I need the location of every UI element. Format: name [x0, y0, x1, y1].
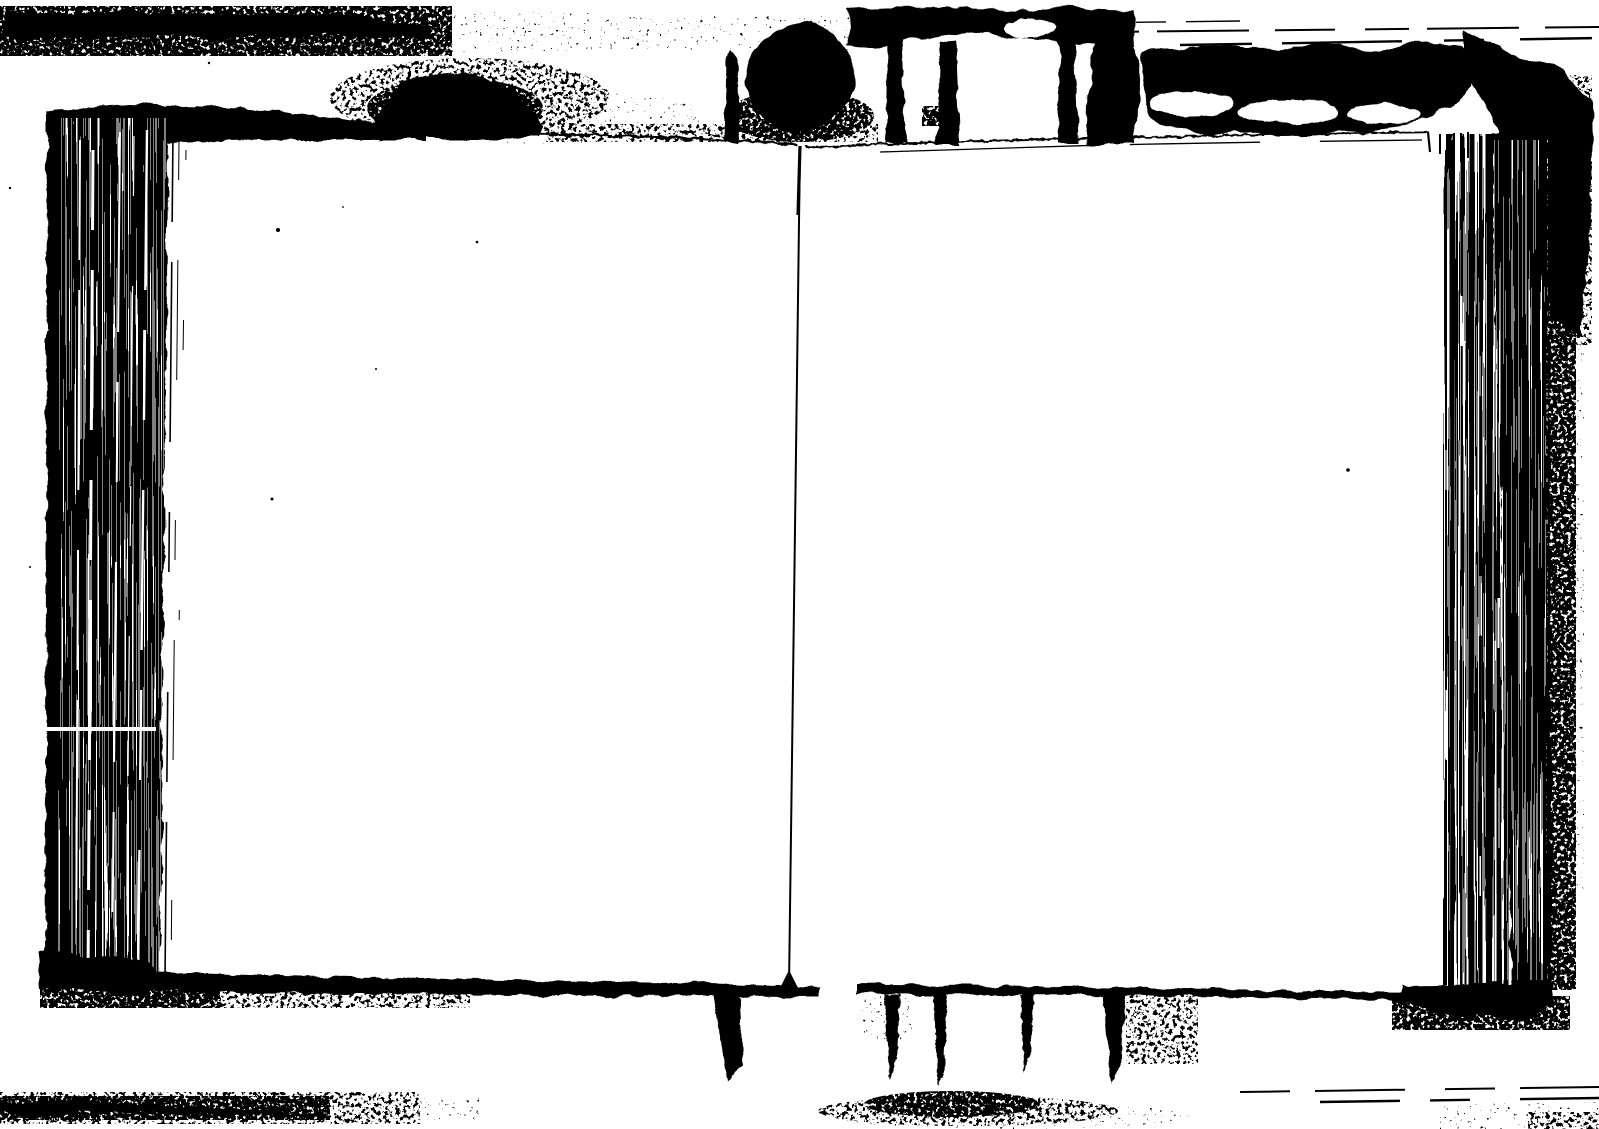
dust-speck — [29, 566, 31, 568]
page-edge-striation-line — [1461, 136, 1462, 990]
book-spine-gutter-top — [798, 146, 800, 215]
page-edge-striation-line — [1471, 134, 1472, 992]
book-spread — [36, 104, 1584, 1086]
dust-speck — [271, 498, 274, 501]
page-edge-striation-line — [1489, 134, 1490, 992]
dust-speck — [9, 187, 11, 189]
dust-speck — [276, 228, 280, 232]
post-fuzz — [1126, 994, 1198, 1064]
dust-speck — [342, 206, 344, 208]
dust-speck — [208, 62, 210, 64]
dirt-clump — [922, 106, 954, 126]
page-edge-striation-line — [1452, 140, 1453, 988]
post-fuzz — [862, 996, 912, 1042]
toner-mass-hole — [1348, 104, 1420, 124]
left-page-edge-texture — [58, 118, 166, 986]
bottom-toner-speckle — [330, 1098, 480, 1120]
top-edge-toner-speckle — [0, 30, 380, 56]
left-page — [180, 146, 792, 980]
bottom-edge-fray — [90, 988, 470, 1008]
top-edge-dirt — [430, 124, 800, 140]
bottom-centre-speckle — [830, 1103, 1190, 1129]
clamp-post-shadow — [936, 40, 960, 145]
right-page — [804, 148, 1436, 984]
dust-speck — [476, 241, 479, 244]
scan-image: Black-and-white photocopy scan of an ope… — [0, 0, 1599, 1129]
toner-mass-hole — [1238, 100, 1338, 124]
right-edge-fuzz — [1566, 220, 1584, 900]
clamp-bridge-hole — [1004, 19, 1056, 37]
clamp-blob-shadow — [1088, 36, 1138, 145]
dust-speck — [1346, 468, 1350, 472]
bottom-right-speckle — [1528, 1112, 1599, 1129]
toner-mass-hole — [1150, 91, 1234, 117]
scanned-book-spread: Black-and-white photocopy scan of an ope… — [0, 0, 1599, 1129]
right-cover-strip-texture — [1494, 140, 1548, 980]
scratch-through-edge-block — [44, 727, 156, 731]
dust-speck — [375, 368, 377, 370]
bottom-corner-speckle — [1392, 996, 1570, 1030]
